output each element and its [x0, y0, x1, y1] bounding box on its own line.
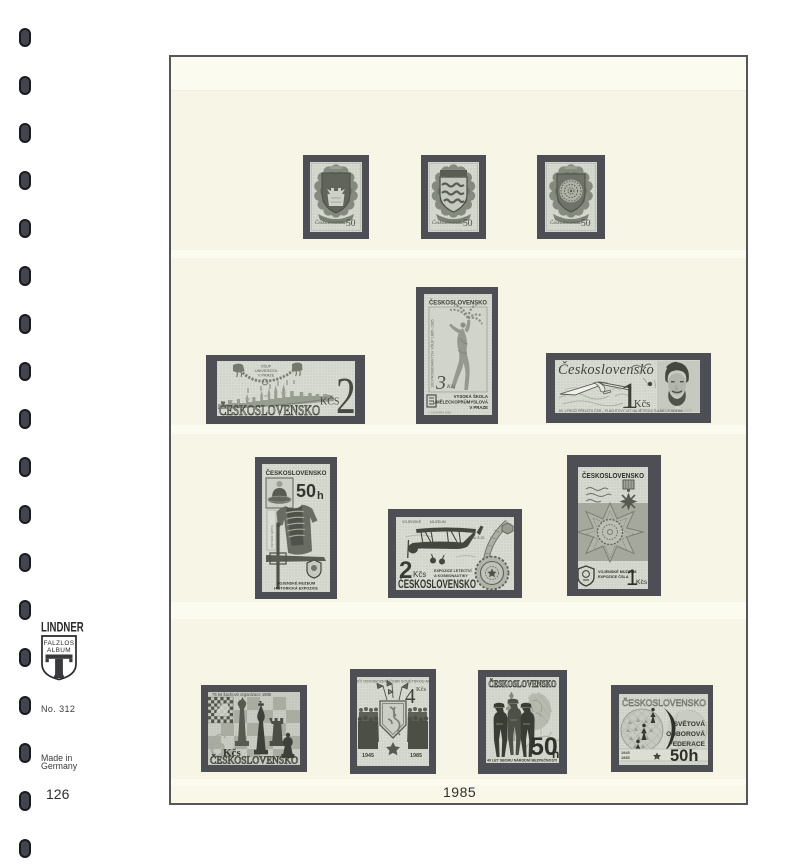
svg-text:HISTORICKÁ EXPOZICE: HISTORICKÁ EXPOZICE	[274, 586, 318, 591]
svg-text:50: 50	[346, 219, 356, 229]
svg-text:50: 50	[463, 219, 473, 229]
svg-text:ČESKOSLOVENSKO: ČESKOSLOVENSKO	[398, 578, 476, 590]
svg-text:40. VÝROČÍ OSVOBOZENÍ ČSSR SOV: 40. VÝROČÍ OSVOBOZENÍ ČSSR SOVĚTSKOU ARM…	[357, 679, 429, 684]
svg-text:ČESKOSLOVENSKO: ČESKOSLOVENSKO	[266, 470, 327, 477]
svg-text:Kčs: Kčs	[636, 579, 648, 586]
svg-text:ODBOROVÁ: ODBOROVÁ	[666, 729, 705, 738]
svg-text:ALBUM: ALBUM	[47, 647, 71, 654]
svg-text:V PRAZE: V PRAZE	[258, 374, 275, 378]
svg-text:2: 2	[336, 367, 355, 416]
svg-text:Kčs: Kčs	[413, 570, 426, 579]
svg-text:J. SOLPERA 1985: J. SOLPERA 1985	[428, 411, 451, 415]
svg-text:ČESKOSLOVENSKO: ČESKOSLOVENSKO	[219, 402, 320, 416]
svg-text:A KOSMONAUTIKY: A KOSMONAUTIKY	[434, 574, 468, 578]
svg-text:Kčs: Kčs	[416, 686, 427, 693]
svg-text:40 LET SBORU NÁRODNÍ BEZPEČNOS: 40 LET SBORU NÁRODNÍ BEZPEČNOSTI	[487, 758, 557, 763]
svg-text:1985: 1985	[410, 753, 422, 759]
svg-text:VOJENSKÉ MUZEUM: VOJENSKÉ MUZEUM	[277, 581, 315, 586]
svg-text:VYSOKÁ ŠKOLA: VYSOKÁ ŠKOLA	[454, 394, 488, 399]
svg-text:ČESKOSLOVENSKO: ČESKOSLOVENSKO	[210, 755, 298, 766]
svg-text:V PRAZE: V PRAZE	[469, 405, 488, 410]
svg-text:vojenská výstroj: vojenská výstroj	[270, 525, 274, 548]
svg-text:Československo: Československo	[432, 220, 464, 226]
svg-text:ČESKOSLOVENSKO: ČESKOSLOVENSKO	[429, 298, 487, 307]
svg-text:Československo: Československo	[550, 220, 582, 226]
svg-text:VOJENSKÉ: VOJENSKÉ	[402, 519, 422, 524]
svg-text:ČESKOSLOVENSKO: ČESKOSLOVENSKO	[582, 471, 644, 480]
svg-text:UNIVERZITA: UNIVERZITA	[255, 369, 278, 373]
svg-text:SVĚTOVÁ: SVĚTOVÁ	[674, 719, 706, 728]
svg-text:Československo: Československo	[315, 220, 347, 226]
svg-text:1945: 1945	[362, 753, 374, 759]
svg-text:50. VÝROČÍ PŘELETU ČSR – PLACH: 50. VÝROČÍ PŘELETU ČSR – PLACHTOVÝ LET N…	[559, 408, 683, 413]
svg-text:75 let šachové organizace 1985: 75 let šachové organizace 1985	[212, 692, 272, 697]
svg-text:EXPOZICE LETECTVÍ: EXPOZICE LETECTVÍ	[434, 568, 472, 573]
svg-text:EXPOZICE ČSLA: EXPOZICE ČSLA	[598, 574, 629, 579]
svg-text:FALZLOS: FALZLOS	[44, 640, 75, 647]
svg-text:ČESKOSLOVENSKO: ČESKOSLOVENSKO	[489, 679, 557, 689]
svg-text:h: h	[317, 490, 324, 502]
svg-text:UMĚLECKOPRŮMYSLOVÁ: UMĚLECKOPRŮMYSLOVÁ	[433, 400, 488, 405]
svg-text:MUZEUM: MUZEUM	[430, 520, 446, 524]
svg-text:ČESKOSLOVENSKO: ČESKOSLOVENSKO	[622, 697, 706, 708]
svg-text:50: 50	[296, 481, 316, 501]
svg-text:Letov Š-20: Letov Š-20	[468, 535, 485, 540]
svg-text:Československo: Československo	[558, 361, 654, 378]
svg-text:100 PROMOVANÝCH VŠUP 1885–1985: 100 PROMOVANÝCH VŠUP 1885–1985	[430, 319, 435, 388]
svg-text:Kčs: Kčs	[446, 384, 455, 390]
svg-text:50: 50	[581, 219, 591, 229]
svg-text:3: 3	[435, 372, 446, 394]
svg-text:VŠUP: VŠUP	[261, 364, 272, 369]
svg-text:1985: 1985	[621, 755, 630, 760]
svg-text:50h: 50h	[670, 747, 698, 765]
